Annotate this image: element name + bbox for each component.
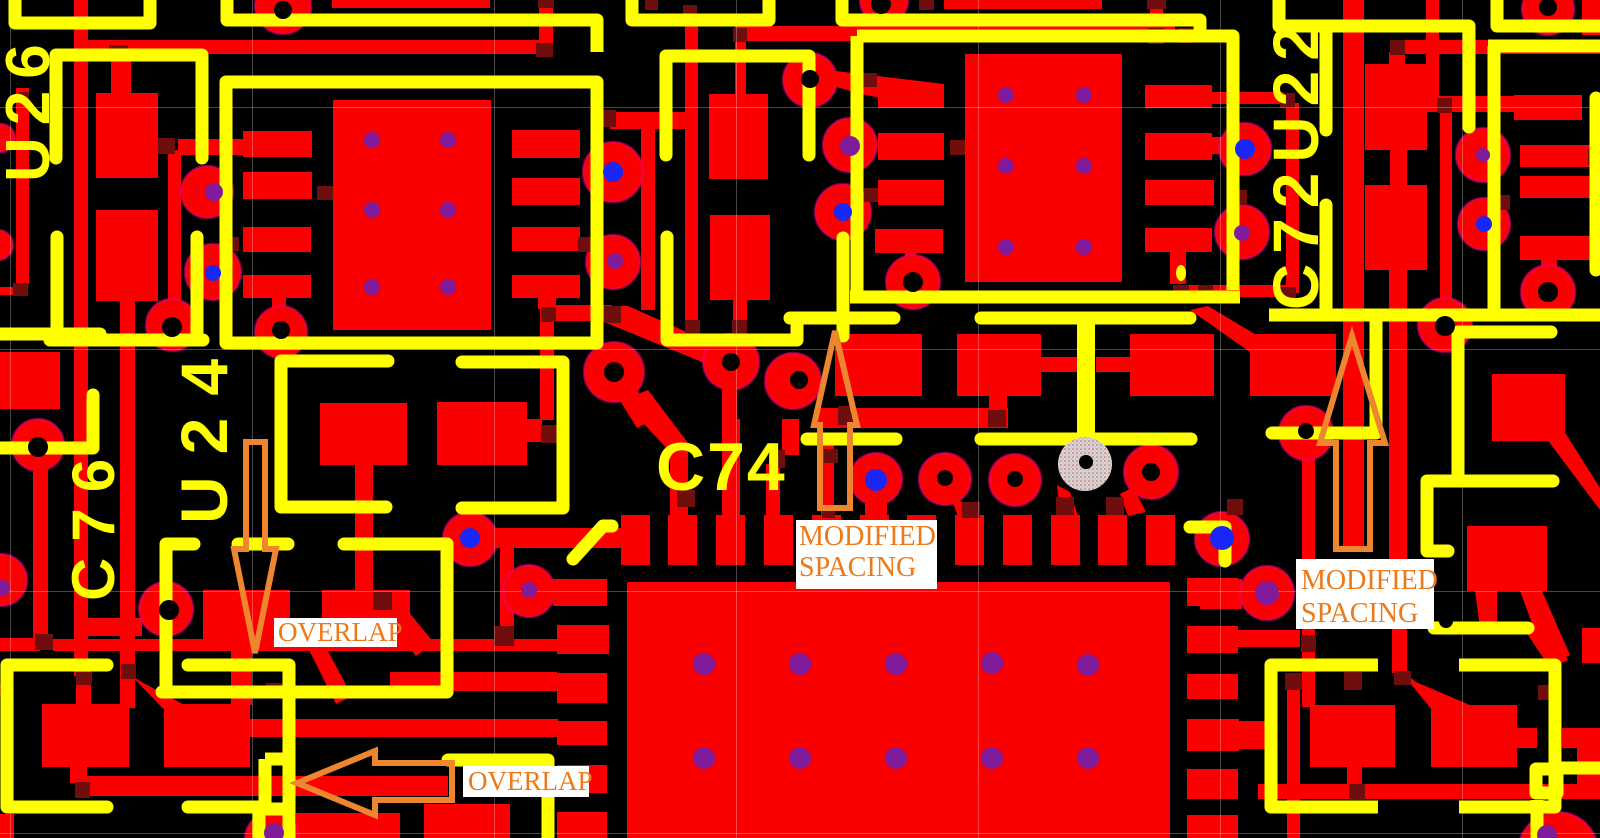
- svg-text:U24: U24: [167, 337, 241, 524]
- svg-text:MODIFIED: MODIFIED: [1301, 565, 1438, 596]
- svg-text:MODIFIED: MODIFIED: [799, 521, 936, 552]
- svg-text:C74: C74: [656, 429, 787, 505]
- svg-text:C76: C76: [60, 443, 127, 601]
- svg-text:U26: U26: [0, 32, 63, 182]
- svg-text:C72U22: C72U22: [1260, 15, 1332, 310]
- svg-text:SPACING: SPACING: [1301, 598, 1418, 629]
- svg-text:OVERLAP: OVERLAP: [278, 617, 403, 647]
- svg-text:SPACING: SPACING: [799, 552, 916, 583]
- svg-text:OVERLAP: OVERLAP: [468, 766, 593, 796]
